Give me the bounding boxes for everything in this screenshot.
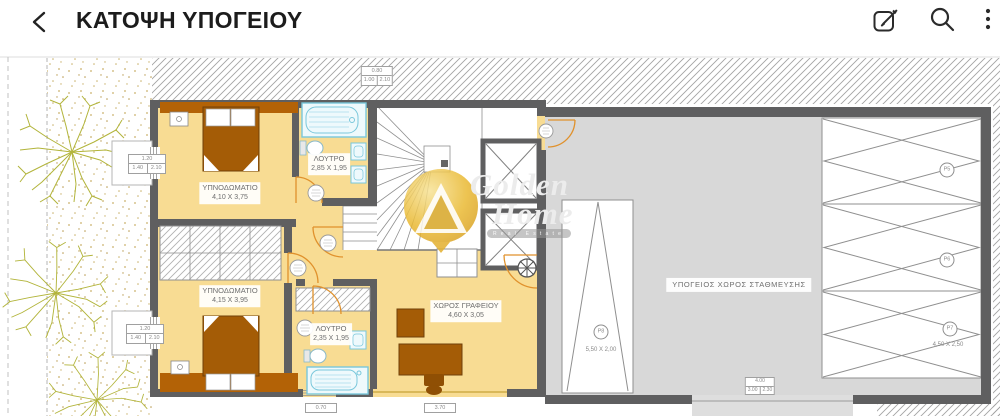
search-icon[interactable]: [928, 6, 956, 34]
parking-spot-p8-dims: 5,50 X 2,00: [586, 347, 617, 353]
dim-bottom-bath: 0.70: [305, 403, 337, 413]
watermark-word-2: Home: [492, 198, 574, 229]
more-options-icon[interactable]: [984, 6, 992, 34]
room-label-office: ΧΩΡΟΣ ΓΡΑΦΕΙΟΥ4,60 X 3,05: [430, 300, 501, 322]
parking-spot-p7-label: P7: [943, 322, 958, 337]
parking-spot-p6-label: P6: [940, 253, 955, 268]
parking-spot-p5-label: P5: [940, 163, 955, 178]
dim-garage-door: 4.00 3.002.30: [745, 377, 775, 395]
room-label-bath-1: ΛΟΥΤΡΟ2,85 X 1,95: [308, 153, 350, 175]
room-label-bedroom-2: ΥΠΝΟΔΩΜΑΤΙΟ4,15 X 3,95: [199, 285, 260, 307]
edit-icon[interactable]: [872, 6, 899, 33]
dim-window-upper: 1.20 1.402.10: [128, 154, 166, 174]
back-icon[interactable]: [28, 10, 50, 34]
room-label-parking: ΥΠΟΓΕΙΟΣ ΧΩΡΟΣ ΣΤΑΘΜΕΥΣΗΣ: [666, 278, 811, 292]
floorplan-canvas[interactable]: ΥΠΝΟΔΩΜΑΤΙΟ4,10 X 3,75 ΛΟΥΤΡΟ2,85 X 1,95…: [0, 0, 1000, 416]
parking-spot-p8-label: P8: [594, 325, 609, 340]
app-header: ΚΑΤΟΨΗ ΥΠΟΓΕΙΟΥ: [0, 0, 1000, 45]
room-label-bedroom-1: ΥΠΝΟΔΩΜΑΤΙΟ4,10 X 3,75: [199, 182, 260, 204]
parking-spot-p7-dims: 4,50 X 2,50: [933, 342, 964, 348]
dim-bottom-office: 3.70: [424, 403, 456, 413]
garden-strip: [47, 58, 152, 416]
room-label-bath-2: ΛΟΥΤΡΟ2,35 X 1,95: [310, 323, 352, 345]
driveway: [692, 395, 853, 416]
page-title: ΚΑΤΟΨΗ ΥΠΟΓΕΙΟΥ: [76, 7, 303, 34]
dim-window-lower: 1.20 1.402.10: [126, 324, 164, 344]
dim-door-top: 0.80 1.002.10: [361, 66, 393, 86]
app-screen: ΚΑΤΟΨΗ ΥΠΟΓΕΙΟΥ: [0, 0, 1000, 416]
watermark-tagline: Real Estate: [487, 229, 571, 238]
